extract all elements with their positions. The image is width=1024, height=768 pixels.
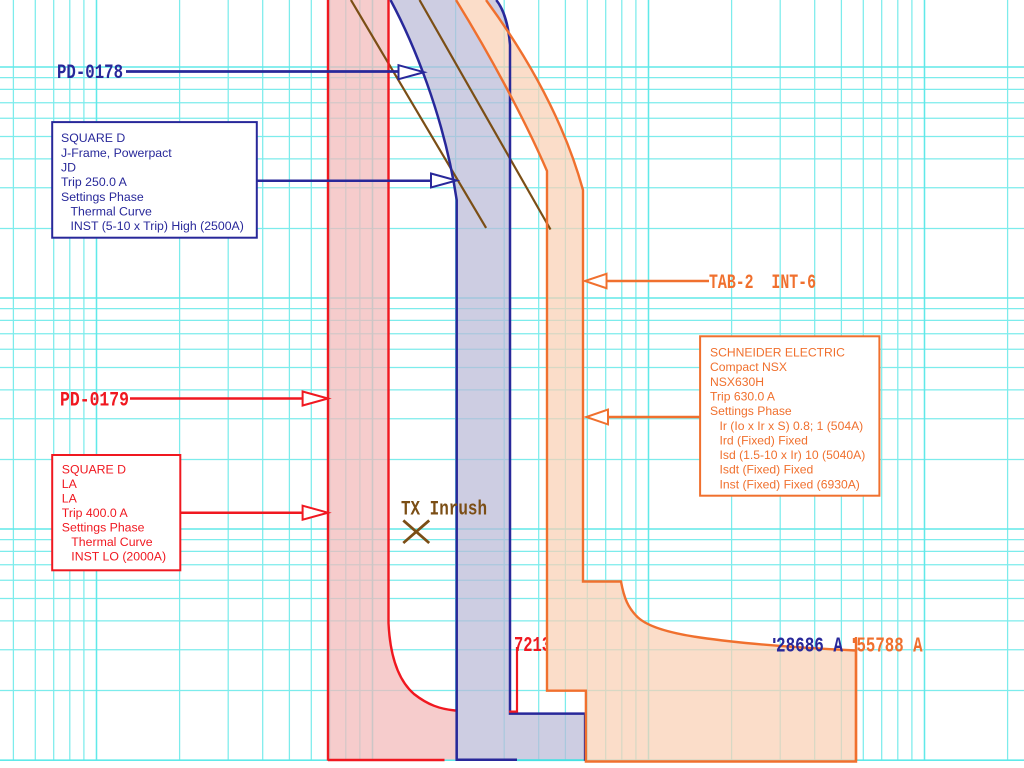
- svg-text:TX Inrush: TX Inrush: [401, 499, 487, 522]
- svg-text:PD-0178: PD-0178: [57, 62, 123, 85]
- svg-text:LA: LA: [62, 477, 78, 491]
- svg-text:Compact NSX: Compact NSX: [710, 360, 787, 374]
- svg-text:Trip 630.0 A: Trip 630.0 A: [710, 389, 776, 403]
- svg-text:Thermal Curve: Thermal Curve: [71, 535, 152, 549]
- svg-text:Ird (Fixed) Fixed: Ird (Fixed) Fixed: [720, 433, 808, 447]
- svg-text:Trip 250.0 A: Trip 250.0 A: [61, 175, 128, 189]
- svg-text:TAB-2 INT-6: TAB-2 INT-6: [709, 272, 816, 295]
- svg-text:Thermal Curve: Thermal Curve: [71, 204, 152, 218]
- svg-text:SQUARE D: SQUARE D: [62, 463, 126, 477]
- svg-text:JD: JD: [61, 161, 76, 175]
- svg-text:Inst (Fixed) Fixed (6930A): Inst (Fixed) Fixed (6930A): [720, 477, 860, 491]
- svg-text:INST LO (2000A): INST LO (2000A): [71, 550, 166, 564]
- svg-text:INST (5-10 x Trip) High (2500A: INST (5-10 x Trip) High (2500A): [71, 219, 244, 233]
- svg-text:Trip 400.0 A: Trip 400.0 A: [62, 506, 129, 520]
- svg-text:Settings Phase: Settings Phase: [61, 190, 144, 204]
- svg-text:28686 A: 28686 A: [776, 636, 843, 659]
- svg-text:LA: LA: [62, 492, 78, 506]
- svg-text:Isd (1.5-10 x Ir) 10 (5040A): Isd (1.5-10 x Ir) 10 (5040A): [720, 448, 866, 462]
- svg-text:Settings Phase: Settings Phase: [710, 404, 792, 418]
- svg-text:SQUARE D: SQUARE D: [61, 131, 125, 145]
- svg-text:PD-0179: PD-0179: [60, 390, 129, 413]
- svg-text:Settings Phase: Settings Phase: [62, 521, 145, 535]
- svg-text:7213: 7213: [514, 635, 551, 658]
- svg-text:NSX630H: NSX630H: [710, 375, 764, 389]
- svg-text:Ir (Io x Ir x S) 0.8; 1 (504A): Ir (Io x Ir x S) 0.8; 1 (504A): [720, 419, 864, 433]
- svg-text:55788 A: 55788 A: [857, 636, 923, 659]
- svg-text:Isdt (Fixed) Fixed: Isdt (Fixed) Fixed: [720, 463, 814, 477]
- svg-text:J-Frame, Powerpact: J-Frame, Powerpact: [61, 146, 172, 160]
- svg-text:SCHNEIDER ELECTRIC: SCHNEIDER ELECTRIC: [710, 346, 845, 360]
